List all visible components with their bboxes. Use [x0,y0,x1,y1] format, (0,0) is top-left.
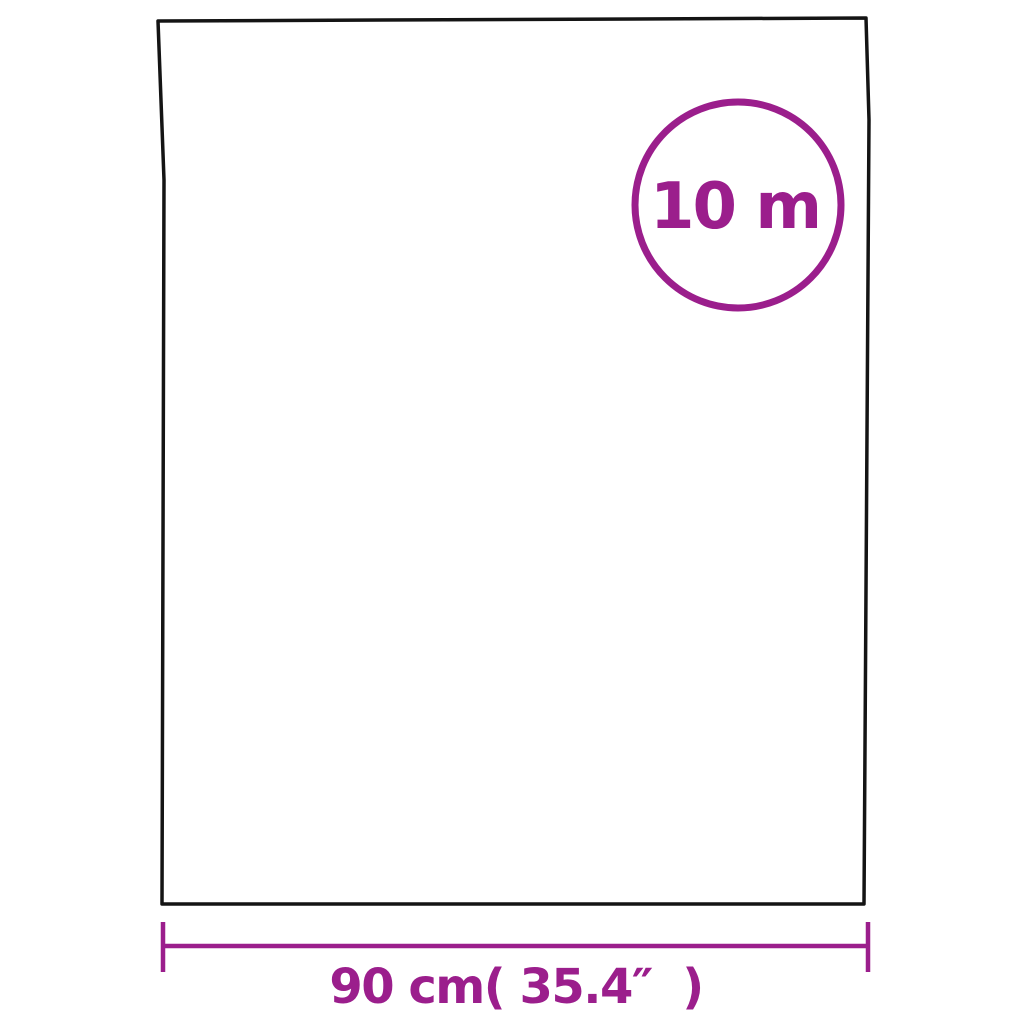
width-dimension-label: 90 cm( 35.4″ ) [329,959,702,1015]
product-diagram: 10 m 90 cm( 35.4″ ) [0,0,1024,1024]
length-badge-label: 10 m [650,170,820,244]
diagram-canvas: 10 m 90 cm( 35.4″ ) [0,0,1024,1024]
